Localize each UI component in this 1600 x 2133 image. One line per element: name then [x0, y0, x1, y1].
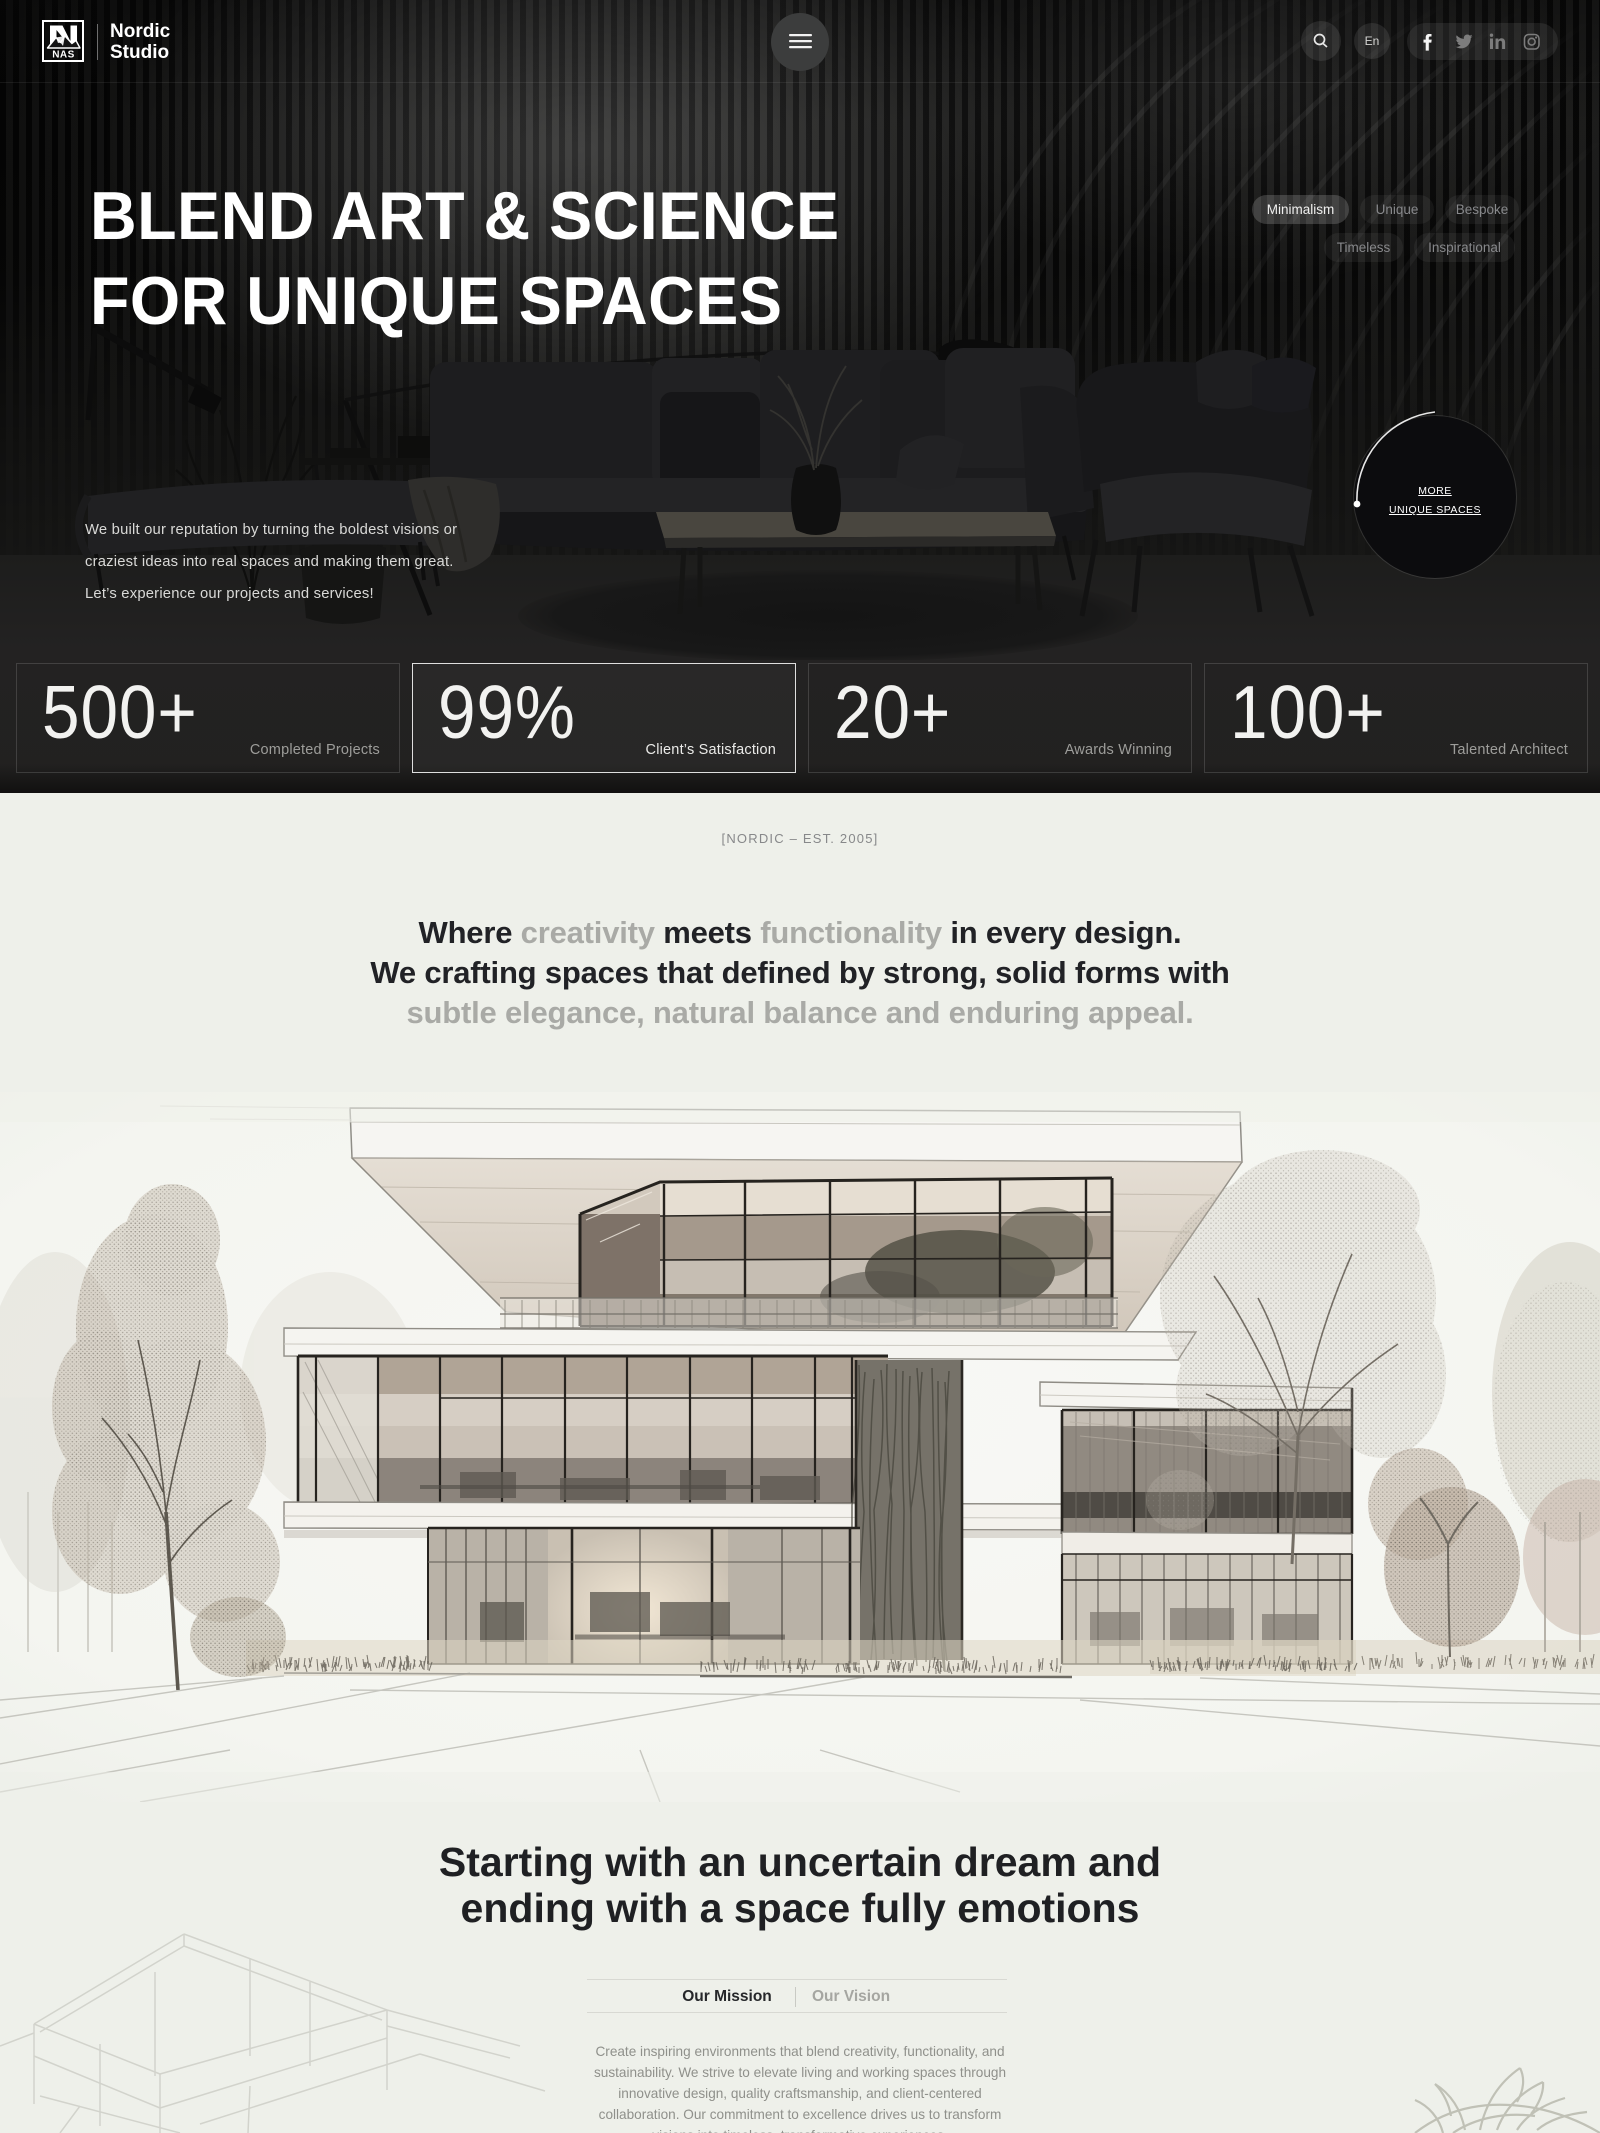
svg-text:NAS: NAS — [52, 49, 75, 60]
